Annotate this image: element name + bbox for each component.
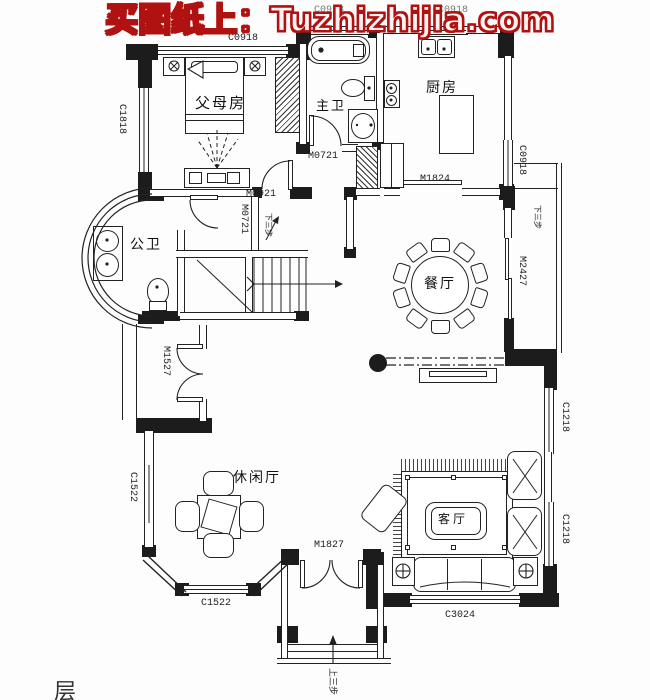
toilet-tank	[364, 76, 375, 101]
dining-chair	[470, 262, 489, 284]
door-leaf-m1527	[177, 344, 203, 349]
railing	[386, 358, 504, 365]
dim-label-c3024: C3024	[445, 610, 475, 621]
window-c1218-upper	[544, 388, 554, 454]
wall	[504, 208, 512, 238]
terrace-edge	[561, 163, 562, 353]
bed-blanket-line	[186, 114, 243, 115]
door-leaf-m0721	[309, 115, 314, 146]
dim-label-m1824: M1824	[420, 174, 450, 185]
window-c1818	[139, 88, 149, 172]
toilet-tank	[149, 301, 167, 311]
nightstand	[163, 57, 185, 76]
wall	[144, 431, 154, 467]
wall	[180, 312, 296, 320]
wall-segment	[544, 364, 557, 390]
kitchen-counter-line	[391, 144, 392, 187]
dim-label-m0721-hall: M0721	[238, 204, 249, 234]
porch-step	[277, 663, 391, 664]
nightstand	[244, 57, 266, 76]
porch-step	[288, 651, 378, 652]
bed-blanket-line	[186, 120, 243, 121]
leisure-chair	[203, 471, 234, 496]
annotation-corner-partial: 层	[54, 682, 78, 700]
wardrobe	[275, 57, 300, 133]
window-c1218-lower	[544, 502, 554, 566]
wall-segment	[290, 187, 312, 199]
kitchen-island	[439, 95, 474, 154]
dresser-drawer	[189, 172, 202, 184]
dim-label-c1522-bottom: C1522	[201, 598, 231, 609]
dim-label-c1218-lower: C1218	[559, 514, 570, 544]
dim-label-m1527: M1527	[160, 346, 171, 376]
sofa-seat-divider	[447, 559, 448, 590]
door-panel-m2427	[505, 238, 509, 280]
annotation-down3-hall: 下三步	[262, 213, 271, 237]
dining-chair	[405, 308, 429, 330]
room-label-master-bath: 主卫	[316, 100, 346, 113]
door-leaf-m1827	[358, 560, 363, 588]
dresser-drawer	[227, 172, 240, 184]
dim-label-m0721-bath: M0721	[308, 151, 338, 162]
console-table-inner	[429, 371, 487, 377]
dresser-drawer	[207, 173, 226, 183]
stove-burner	[386, 95, 397, 106]
window-c3024	[410, 595, 520, 604]
column	[369, 354, 387, 372]
floor-plan: C0918 C0918 C0918 C1818 M0921 M0721 M072…	[0, 0, 650, 700]
wall	[384, 188, 400, 196]
room-label-parents-bedroom: 父母房	[195, 96, 246, 111]
door-panel-m2427	[508, 278, 512, 320]
room-label-dining: 餐厅	[424, 277, 456, 291]
dining-chair	[470, 287, 489, 309]
wall	[199, 399, 207, 421]
wall	[177, 230, 185, 316]
annotation-up3-entry: 上三步	[326, 668, 336, 695]
dim-label-c0918-right: C0918	[516, 145, 527, 175]
mirror-rays	[197, 130, 238, 168]
wall-corner	[543, 564, 557, 607]
dining-chair	[453, 308, 477, 330]
shaft-hatched	[356, 146, 378, 190]
leisure-chair	[203, 533, 234, 558]
vanity-basin	[96, 230, 119, 252]
dim-label-c1218-upper: C1218	[559, 402, 570, 432]
sofa-seat-divider	[481, 559, 482, 590]
dining-chair	[392, 287, 411, 309]
bed-pillow	[191, 61, 238, 73]
stair-direction-arrow	[247, 277, 343, 291]
wall-segment	[246, 583, 261, 596]
side-table	[513, 557, 538, 586]
entry-post	[281, 549, 299, 565]
rug-corner	[451, 475, 456, 480]
watermark-banner: 买图纸上：Tuzhizhijia.com	[105, 0, 555, 40]
bathtub-faucet	[353, 44, 364, 57]
wall-segment	[142, 311, 180, 321]
stair-divider	[245, 257, 253, 315]
stove-burner	[386, 83, 397, 94]
rug-corner	[405, 545, 410, 550]
toilet-bowl	[341, 79, 365, 97]
dim-label-c1818: C1818	[116, 104, 127, 134]
wall	[251, 197, 259, 252]
armchair	[507, 451, 542, 500]
window-c0918-right	[503, 140, 513, 186]
dining-chair	[431, 320, 450, 334]
window-c1522-bottom	[184, 585, 248, 594]
wall-segment	[503, 186, 515, 210]
dining-chair	[453, 241, 477, 263]
porch-step	[288, 644, 378, 645]
terrace-edge	[556, 163, 557, 353]
armchair	[507, 507, 542, 556]
wall	[144, 523, 154, 547]
dining-chair	[392, 262, 411, 284]
door-leaf-m1827	[300, 560, 305, 588]
kitchen-sink-basin	[421, 39, 436, 55]
porch-wall	[281, 565, 288, 658]
wall	[544, 452, 552, 504]
rug-corner	[451, 545, 456, 550]
leisure-chair	[175, 501, 200, 532]
kitchen-sink-basin	[437, 39, 452, 55]
vanity-basin	[96, 253, 119, 277]
room-label-living: 客厅	[438, 513, 468, 525]
dim-label-c1522-left: C1522	[127, 472, 138, 502]
rug-fringe	[401, 459, 513, 471]
terrace-step	[514, 188, 558, 189]
wall-segment	[138, 44, 152, 88]
leisure-chair	[239, 501, 264, 532]
dim-label-m2427: M2427	[516, 256, 527, 286]
room-label-leisure: 休闲厅	[233, 471, 281, 485]
sofa	[413, 557, 516, 592]
wall-segment	[294, 311, 309, 321]
sink-basin	[351, 113, 375, 139]
annotation-down3-side: 下三步	[531, 205, 540, 229]
window-c0918	[158, 46, 288, 55]
room-label-public-bath: 公卫	[130, 238, 162, 252]
dim-label-m0921: M0921	[246, 189, 276, 200]
wall	[462, 188, 500, 196]
porch-step	[277, 658, 391, 659]
wall	[122, 324, 137, 420]
dining-chair	[431, 238, 450, 252]
door-leaf-m0921	[288, 160, 293, 190]
wall-segment	[504, 318, 514, 352]
wall	[504, 56, 512, 142]
stair-rail	[176, 250, 308, 258]
dim-label-m1827: M1827	[314, 540, 344, 551]
rug-corner	[405, 475, 410, 480]
porch-wall	[377, 565, 384, 658]
side-table	[392, 557, 415, 586]
wall	[299, 44, 307, 144]
wall	[346, 197, 354, 249]
wall	[356, 188, 380, 196]
door-leaf-m1527	[177, 397, 203, 402]
room-label-kitchen: 厨房	[426, 81, 458, 95]
window-c1522-left	[144, 465, 154, 525]
door-leaf-public-bath	[190, 195, 218, 200]
